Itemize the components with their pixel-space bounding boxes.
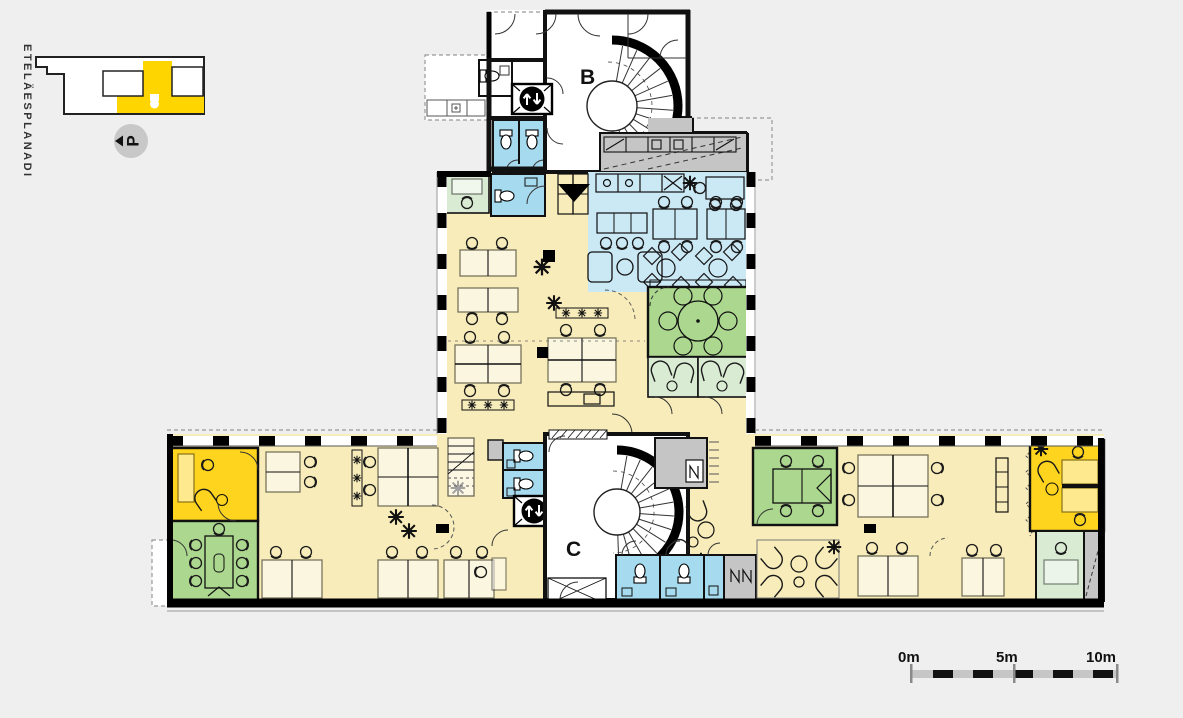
parking-icon: P (124, 135, 143, 146)
meeting-room-mid (648, 287, 749, 357)
key-plan: ETELÄESPLANADI P (21, 44, 204, 179)
service-nook (488, 440, 503, 460)
key-plan-courtyard-left (103, 71, 143, 96)
key-plan-notch-circle (150, 100, 159, 109)
desk-near-c (492, 558, 506, 590)
scale-5-label: 5m (996, 649, 1018, 666)
meeting-room-right (753, 448, 837, 525)
wc-rooms-c (503, 443, 545, 498)
stairwell-b-label: B (580, 66, 595, 89)
stairwell-c-label: C (566, 538, 581, 561)
scale-bar: 0m 5m 10m (898, 649, 1119, 683)
corner-office-right (1030, 440, 1104, 531)
floor-plan-canvas: ETELÄESPLANADI P (0, 0, 1183, 718)
corner-office-left (171, 448, 258, 521)
straight-stair (448, 438, 474, 496)
key-plan-courtyard-right (172, 67, 203, 96)
scale-10-label: 10m (1086, 649, 1116, 666)
key-plan-highlight-bar (117, 96, 204, 113)
scale-0-label: 0m (898, 649, 920, 666)
key-plan-highlight-stem (143, 61, 172, 97)
floorplan-page: ETELÄESPLANADI P (0, 0, 1183, 718)
street-label: ETELÄESPLANADI (21, 44, 34, 179)
parking-badge: P (114, 124, 148, 158)
elevator-icon (512, 84, 552, 114)
